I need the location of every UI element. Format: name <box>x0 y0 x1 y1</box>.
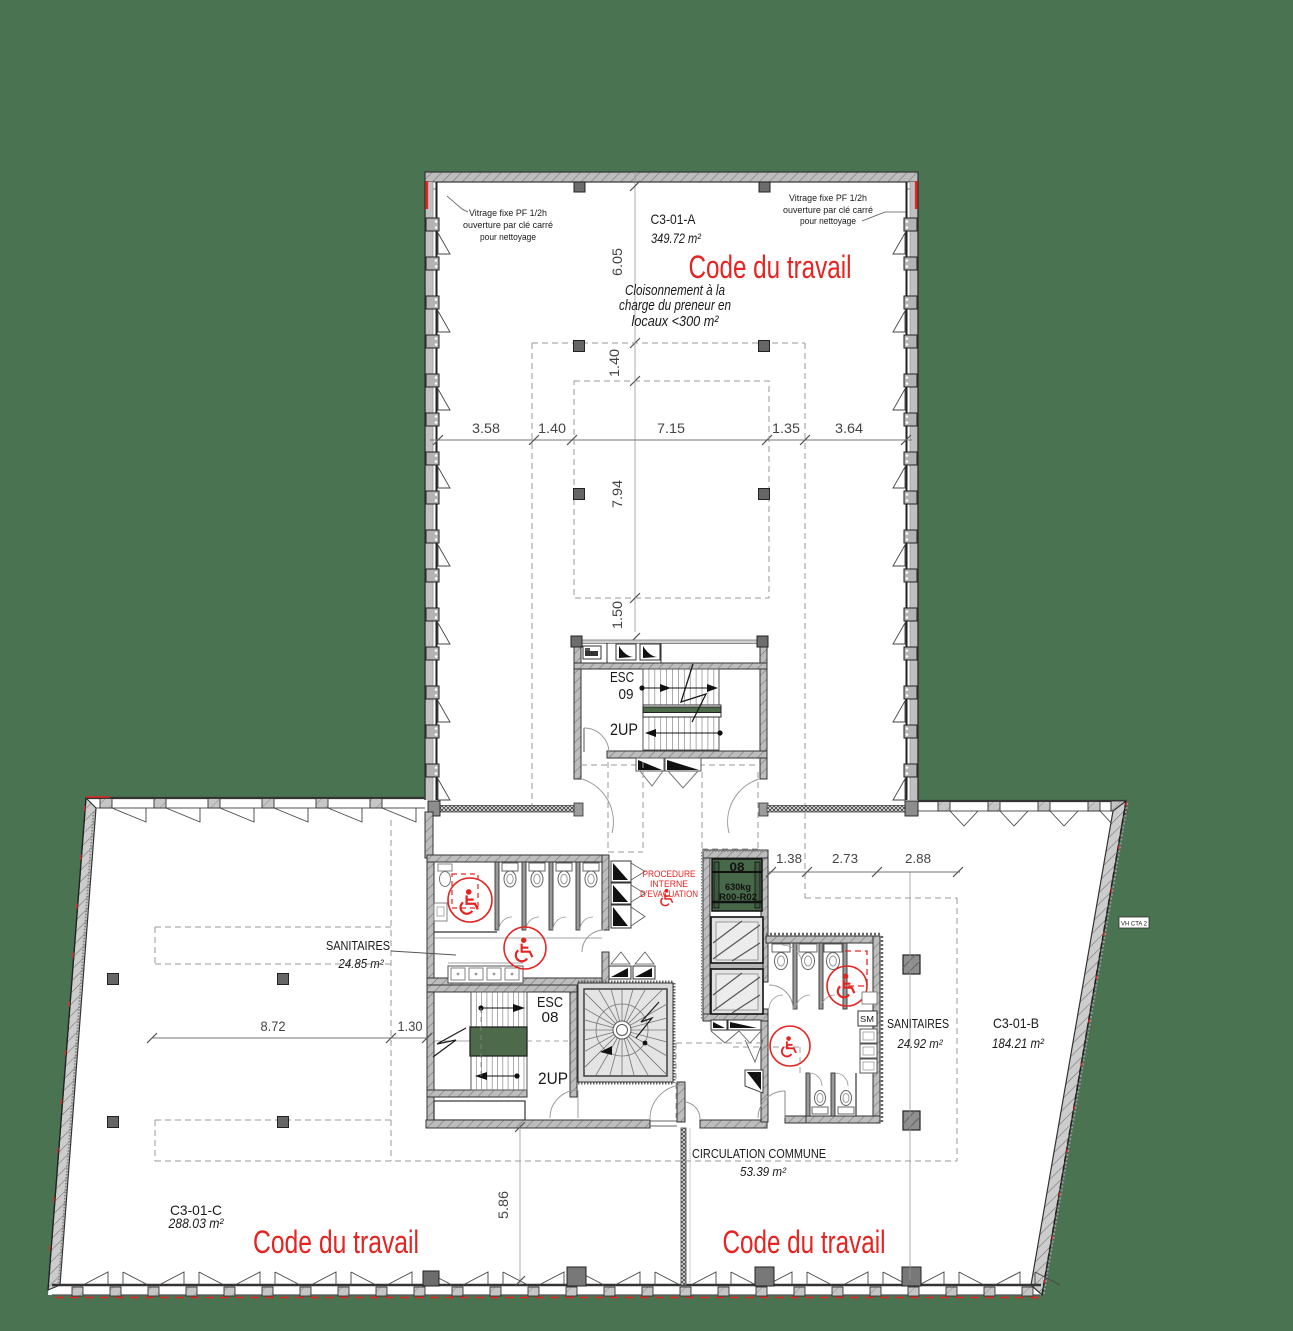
svg-text:Code du travail: Code du travail <box>723 1224 886 1260</box>
svg-text:1.50: 1.50 <box>609 601 625 629</box>
svg-text:349.72 m²: 349.72 m² <box>651 230 702 246</box>
svg-text:Code du travail: Code du travail <box>253 1224 419 1260</box>
svg-text:INTERNE: INTERNE <box>650 879 688 889</box>
svg-text:1.30: 1.30 <box>398 1018 423 1034</box>
svg-text:SANITAIRES: SANITAIRES <box>887 1016 949 1031</box>
svg-text:pour nettoyage: pour nettoyage <box>480 232 536 242</box>
svg-text:6.05: 6.05 <box>609 248 625 276</box>
svg-text:7.15: 7.15 <box>657 420 685 436</box>
svg-text:locaux <300 m²: locaux <300 m² <box>632 313 720 330</box>
svg-text:3.64: 3.64 <box>835 420 863 436</box>
svg-text:288.03 m²: 288.03 m² <box>168 1215 225 1231</box>
svg-text:PROCEDURE: PROCEDURE <box>643 869 696 879</box>
svg-text:53.39 m²: 53.39 m² <box>740 1164 787 1179</box>
svg-text:Vitrage fixe PF 1/2h: Vitrage fixe PF 1/2h <box>469 208 547 218</box>
svg-text:Vitrage fixe PF 1/2h: Vitrage fixe PF 1/2h <box>789 193 867 203</box>
svg-text:pour nettoyage: pour nettoyage <box>800 216 856 226</box>
svg-text:ouverture par clé carré: ouverture par clé carré <box>783 205 873 215</box>
svg-text:VH CTA 2: VH CTA 2 <box>1121 921 1147 928</box>
svg-text:SM: SM <box>860 1014 874 1024</box>
svg-text:1.40: 1.40 <box>538 420 566 436</box>
svg-text:630kg: 630kg <box>725 882 751 892</box>
svg-text:24.92 m²: 24.92 m² <box>897 1036 943 1051</box>
svg-text:SANITAIRES: SANITAIRES <box>326 938 390 953</box>
svg-text:C3-01-B: C3-01-B <box>993 1015 1039 1031</box>
svg-text:2UP: 2UP <box>610 721 638 739</box>
svg-text:1.40: 1.40 <box>606 349 622 377</box>
svg-text:8.72: 8.72 <box>261 1018 286 1034</box>
svg-text:R00-R02: R00-R02 <box>719 892 757 902</box>
svg-text:184.21 m²: 184.21 m² <box>992 1035 1045 1051</box>
svg-text:charge du preneur en: charge du preneur en <box>619 297 731 314</box>
svg-text:1.38: 1.38 <box>776 851 802 866</box>
svg-text:1.35: 1.35 <box>772 420 800 436</box>
svg-text:09: 09 <box>619 686 634 703</box>
svg-text:08: 08 <box>542 1009 559 1026</box>
svg-text:5.86: 5.86 <box>495 1191 511 1219</box>
svg-text:ouverture par clé carré: ouverture par clé carré <box>463 220 553 230</box>
svg-text:D’EVACUATION: D’EVACUATION <box>640 889 698 899</box>
svg-text:Code du travail: Code du travail <box>689 249 852 285</box>
svg-text:2.73: 2.73 <box>832 851 858 866</box>
svg-text:2UP: 2UP <box>538 1069 568 1088</box>
svg-text:24.85 m²: 24.85 m² <box>338 956 384 971</box>
svg-text:3.58: 3.58 <box>472 420 500 436</box>
svg-text:ESC: ESC <box>610 669 634 686</box>
svg-text:08: 08 <box>730 860 745 874</box>
svg-text:7.94: 7.94 <box>609 480 625 508</box>
svg-text:C3-01-A: C3-01-A <box>651 211 697 227</box>
svg-text:2.88: 2.88 <box>905 851 931 866</box>
svg-text:CIRCULATION COMMUNE: CIRCULATION COMMUNE <box>692 1146 826 1161</box>
